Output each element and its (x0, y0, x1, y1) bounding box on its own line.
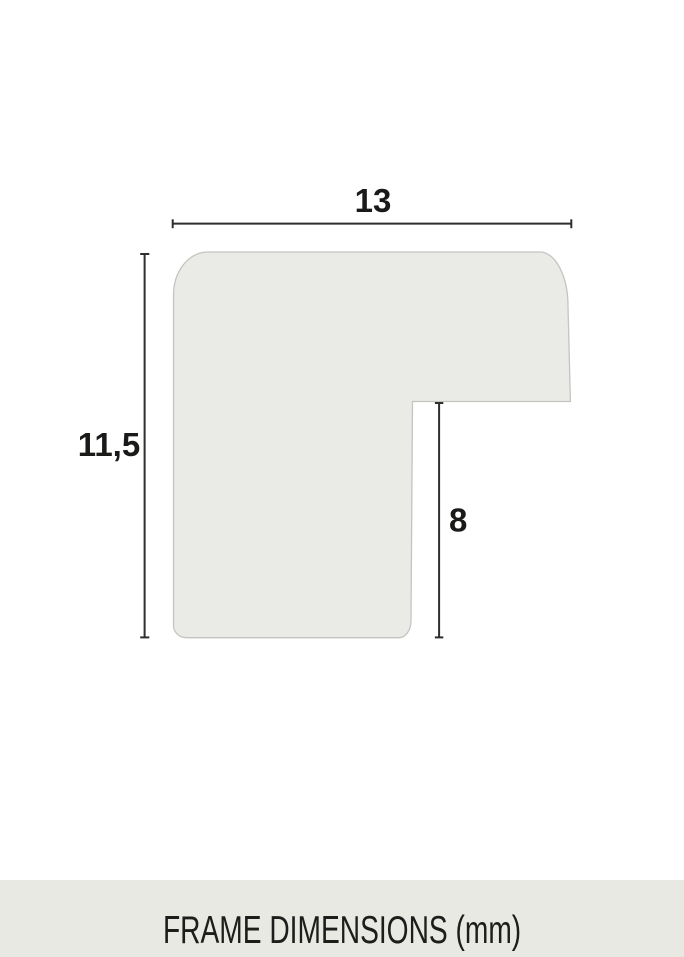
svg-text:13: 13 (355, 182, 392, 219)
svg-text:11,5: 11,5 (78, 426, 140, 463)
svg-text:8: 8 (449, 502, 467, 539)
